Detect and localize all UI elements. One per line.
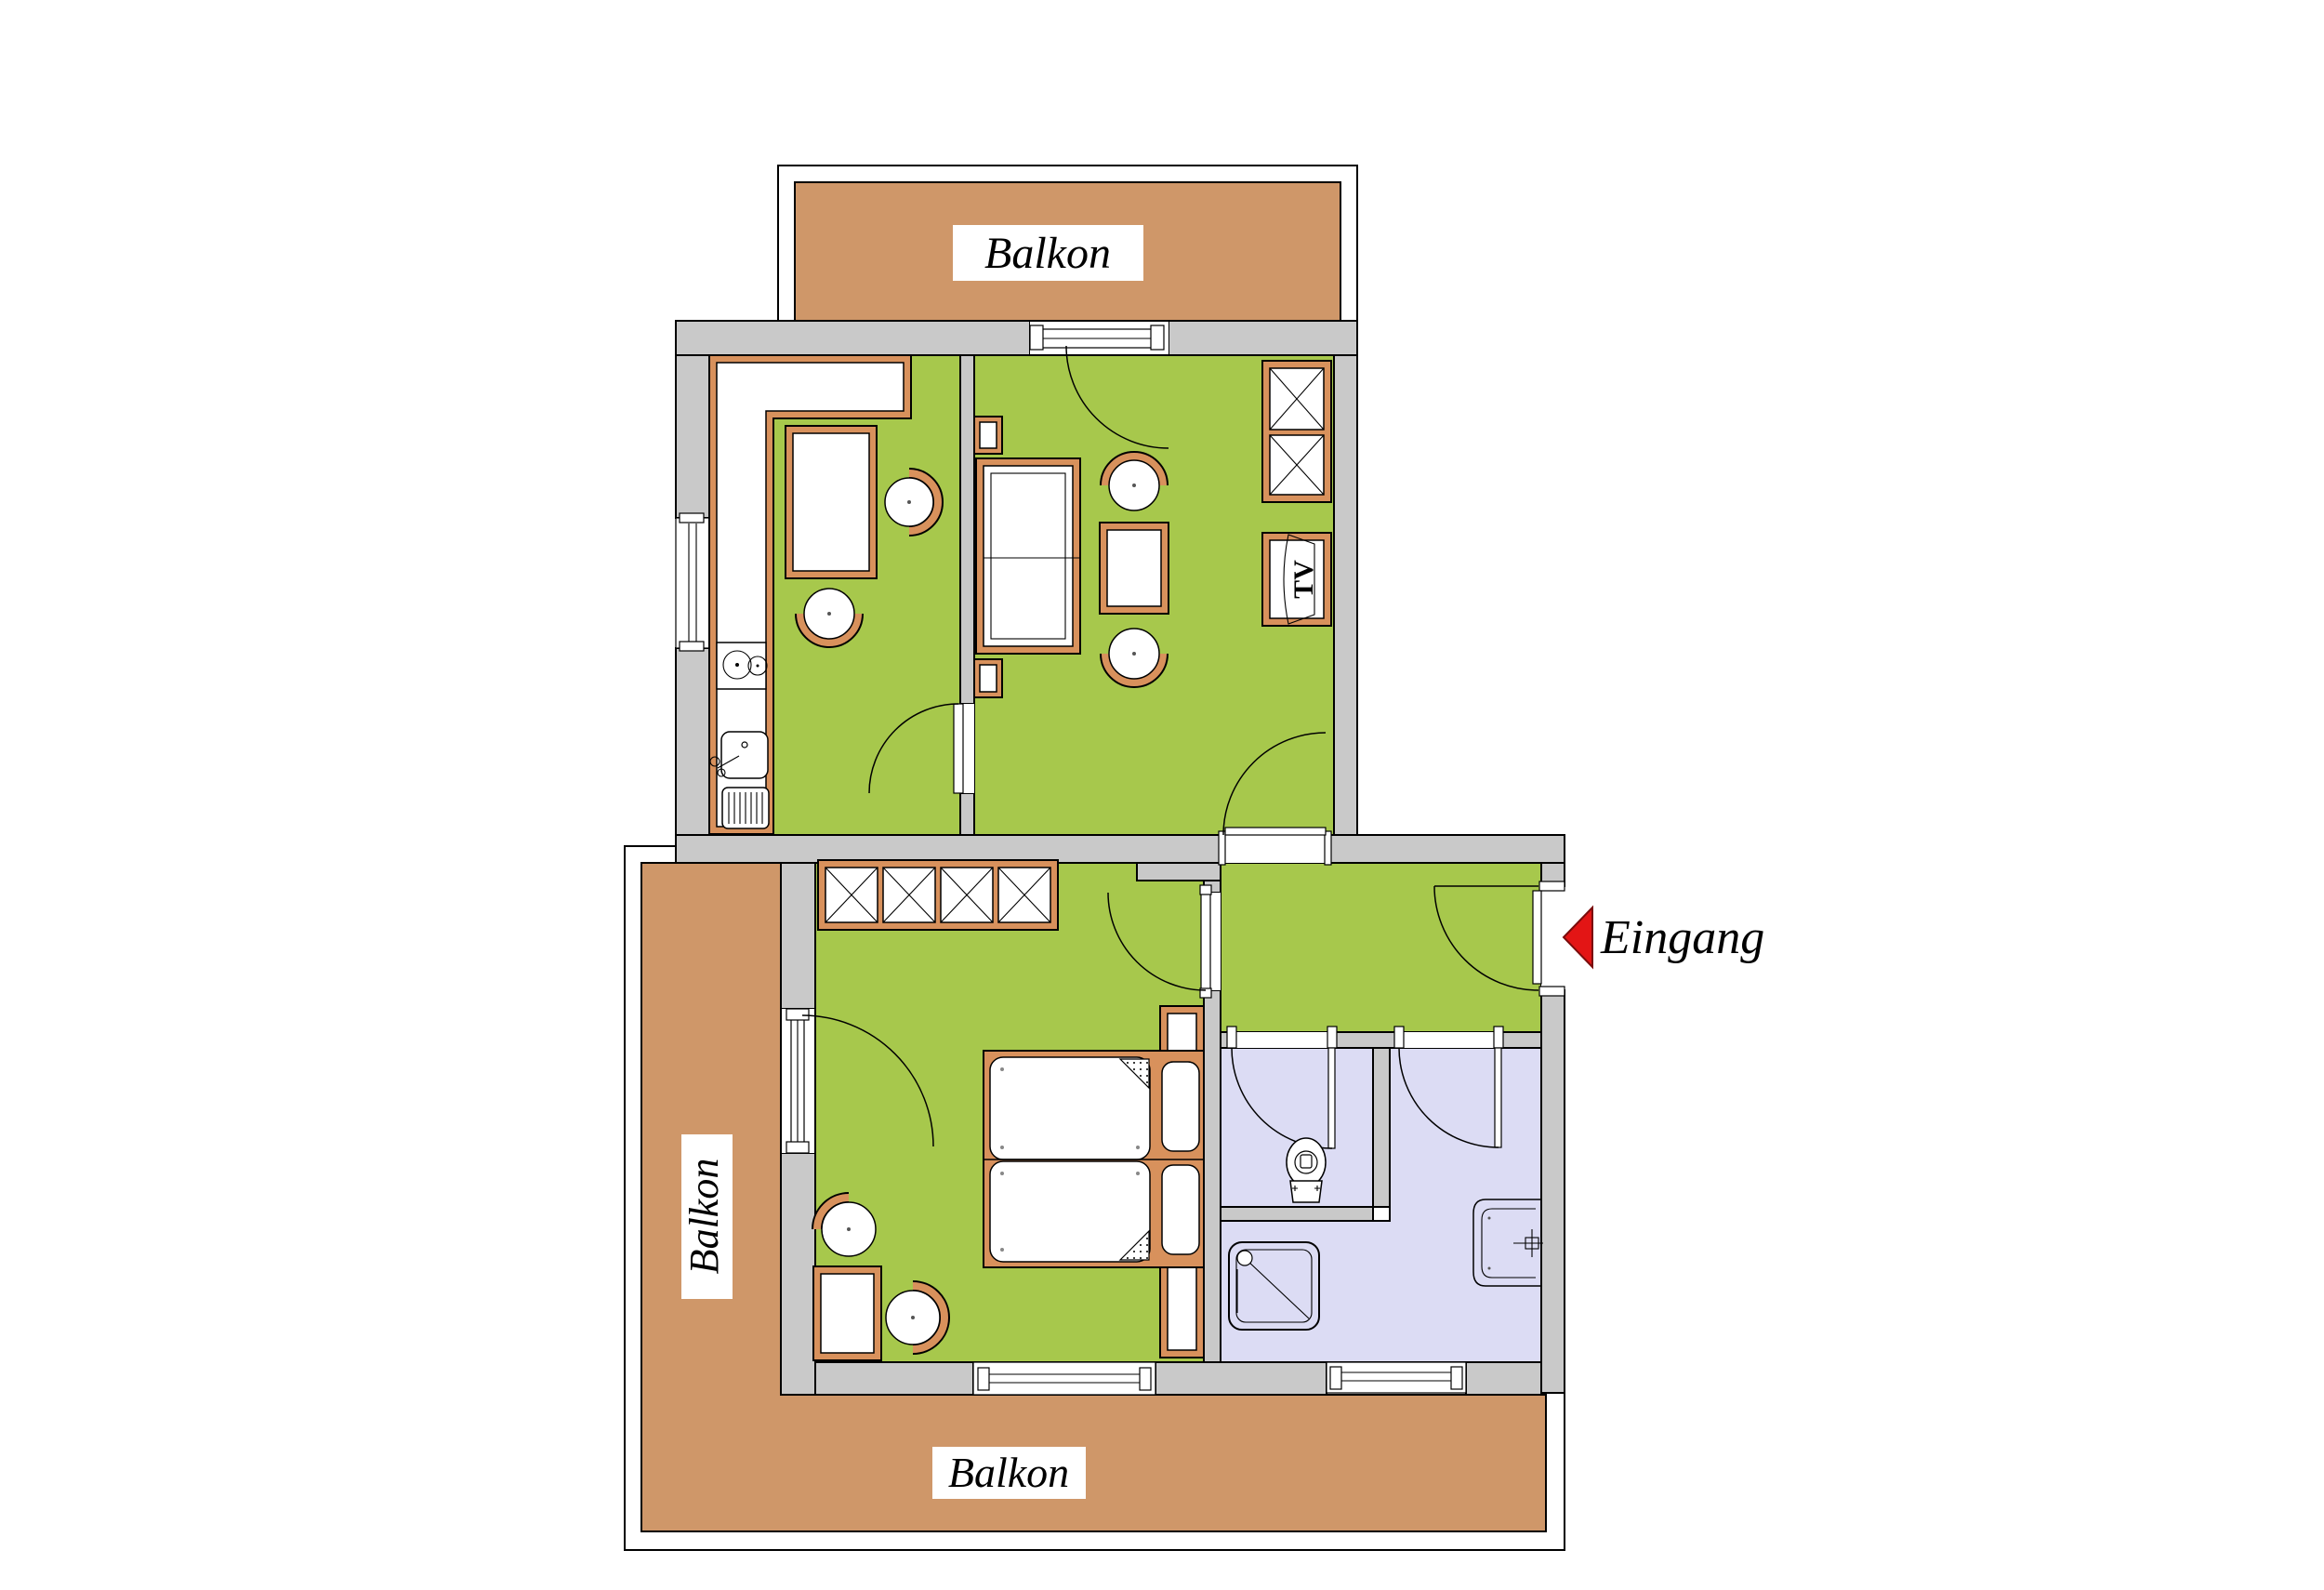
bedroom-table (813, 1266, 881, 1360)
bedroom-wardrobe (818, 860, 1058, 930)
wall-segment (781, 863, 815, 1009)
wall-segment (1221, 1207, 1373, 1221)
wall-segment (1541, 990, 1565, 1393)
living-wardrobe (1262, 361, 1331, 502)
floorplan-canvas: TV (0, 0, 2324, 1590)
label-balkon-top: Balkon (953, 225, 1143, 281)
entrance-arrow-icon (1564, 908, 1592, 967)
wall-segment (676, 355, 709, 518)
stove (717, 643, 767, 689)
wall-segment (676, 835, 1223, 863)
coffee-table (1100, 523, 1169, 614)
drying-rack (722, 788, 769, 828)
wall-segment (1326, 835, 1565, 863)
wall-segment (1204, 990, 1221, 1362)
floorplan-drawing: TV (0, 0, 2324, 1590)
wall-segment (1373, 1048, 1390, 1207)
side-table (974, 417, 1002, 454)
tv-cabinet: TV (1262, 533, 1331, 626)
bedroom-window (973, 1362, 1155, 1395)
side-table (974, 659, 1002, 697)
entrance-label: Eingang (1600, 911, 1764, 964)
wall-segment (1466, 1362, 1541, 1395)
wall-segment (676, 648, 709, 835)
wall-segment (815, 1362, 973, 1395)
twin-beds (984, 1051, 1204, 1267)
balcony-top-label: Balkon (984, 229, 1111, 278)
label-balkon-left: Balkon (681, 1134, 733, 1299)
toilet (1287, 1138, 1326, 1202)
wall-segment (676, 321, 1030, 355)
balcony-left-label: Balkon (681, 1159, 727, 1275)
hallway (1221, 863, 1541, 1032)
bathroom-window (1327, 1362, 1466, 1393)
wall-segment (781, 1153, 815, 1395)
label-balkon-bottom: Balkon (932, 1447, 1086, 1499)
entrance-annotation: Eingang (1564, 908, 1764, 967)
wall-segment (960, 355, 974, 704)
wall-segment (1137, 863, 1221, 881)
wall-segment (960, 793, 974, 835)
wall-segment (1332, 1032, 1399, 1048)
wall-segment (1499, 1032, 1541, 1048)
wall-segment (1169, 321, 1357, 355)
dining-table (786, 426, 877, 578)
kitchen-window (676, 513, 709, 651)
wall-segment (1155, 1362, 1327, 1395)
sofa-bed (976, 458, 1080, 654)
balcony-bottom-label: Balkon (948, 1449, 1069, 1496)
wall-segment (1334, 355, 1357, 835)
tv-label: TV (1288, 560, 1319, 599)
